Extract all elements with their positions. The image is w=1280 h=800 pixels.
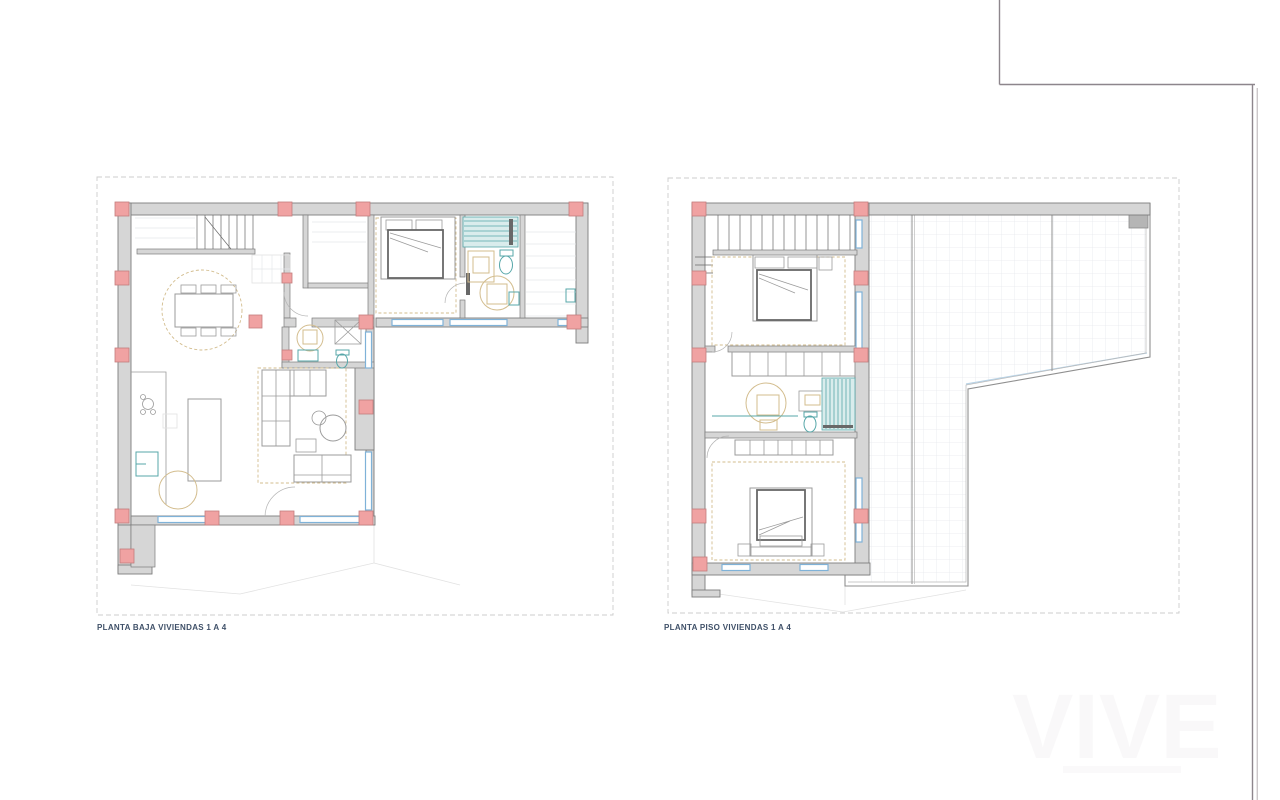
- shower-door: [509, 219, 513, 245]
- plan-planta-piso: PLANTA PISO VIVIENDAS 1 A 4: [664, 178, 1179, 632]
- bed: [738, 488, 824, 556]
- stove-icon: [143, 399, 154, 410]
- breakfast-table: [159, 471, 197, 509]
- wc-sink: [298, 350, 318, 361]
- floor-plan-sheet: VIVE: [0, 0, 1280, 800]
- bathroom-gf: [463, 217, 519, 310]
- shower: [822, 378, 855, 430]
- intercom: [566, 289, 575, 302]
- terrain-lines: [705, 586, 966, 612]
- floor-plan-drawing: VIVE: [0, 0, 1280, 800]
- kitchen: [136, 395, 221, 510]
- caption-planta-piso: PLANTA PISO VIVIENDAS 1 A 4: [664, 623, 791, 632]
- kitchen-island: [188, 399, 221, 481]
- wardrobe: [732, 352, 855, 376]
- coffee-table: [296, 439, 316, 452]
- armchair: [320, 415, 346, 441]
- plan-planta-baja: PLANTA BAJA VIVIENDAS 1 A 4: [97, 177, 613, 632]
- watermark: VIVE: [1012, 676, 1222, 778]
- porch: [526, 232, 576, 316]
- terrain-lines: [131, 525, 460, 594]
- bed: [753, 255, 832, 321]
- toilet: [500, 250, 514, 274]
- caption-planta-baja: PLANTA BAJA VIVIENDAS 1 A 4: [97, 623, 227, 632]
- bathroom-ff: [712, 378, 855, 455]
- terrace-floor: [869, 215, 1146, 582]
- watermark-tagline-bar: [1063, 766, 1181, 773]
- bedroom-2: [712, 462, 845, 560]
- bed: [381, 217, 455, 279]
- bedroom-1: [712, 255, 855, 376]
- wardrobe: [735, 440, 833, 455]
- loveseat: [294, 455, 351, 482]
- wc-basin: [297, 325, 323, 351]
- terrace: [845, 203, 1150, 586]
- bedroom-gf: [376, 217, 456, 313]
- dining-table: [162, 270, 242, 350]
- sofa: [262, 370, 326, 446]
- toilet: [804, 412, 817, 432]
- basin: [746, 383, 786, 423]
- side-table: [312, 411, 326, 425]
- watermark-text: VIVE: [1012, 676, 1222, 778]
- living-room: [258, 368, 351, 483]
- shelf: [799, 391, 825, 411]
